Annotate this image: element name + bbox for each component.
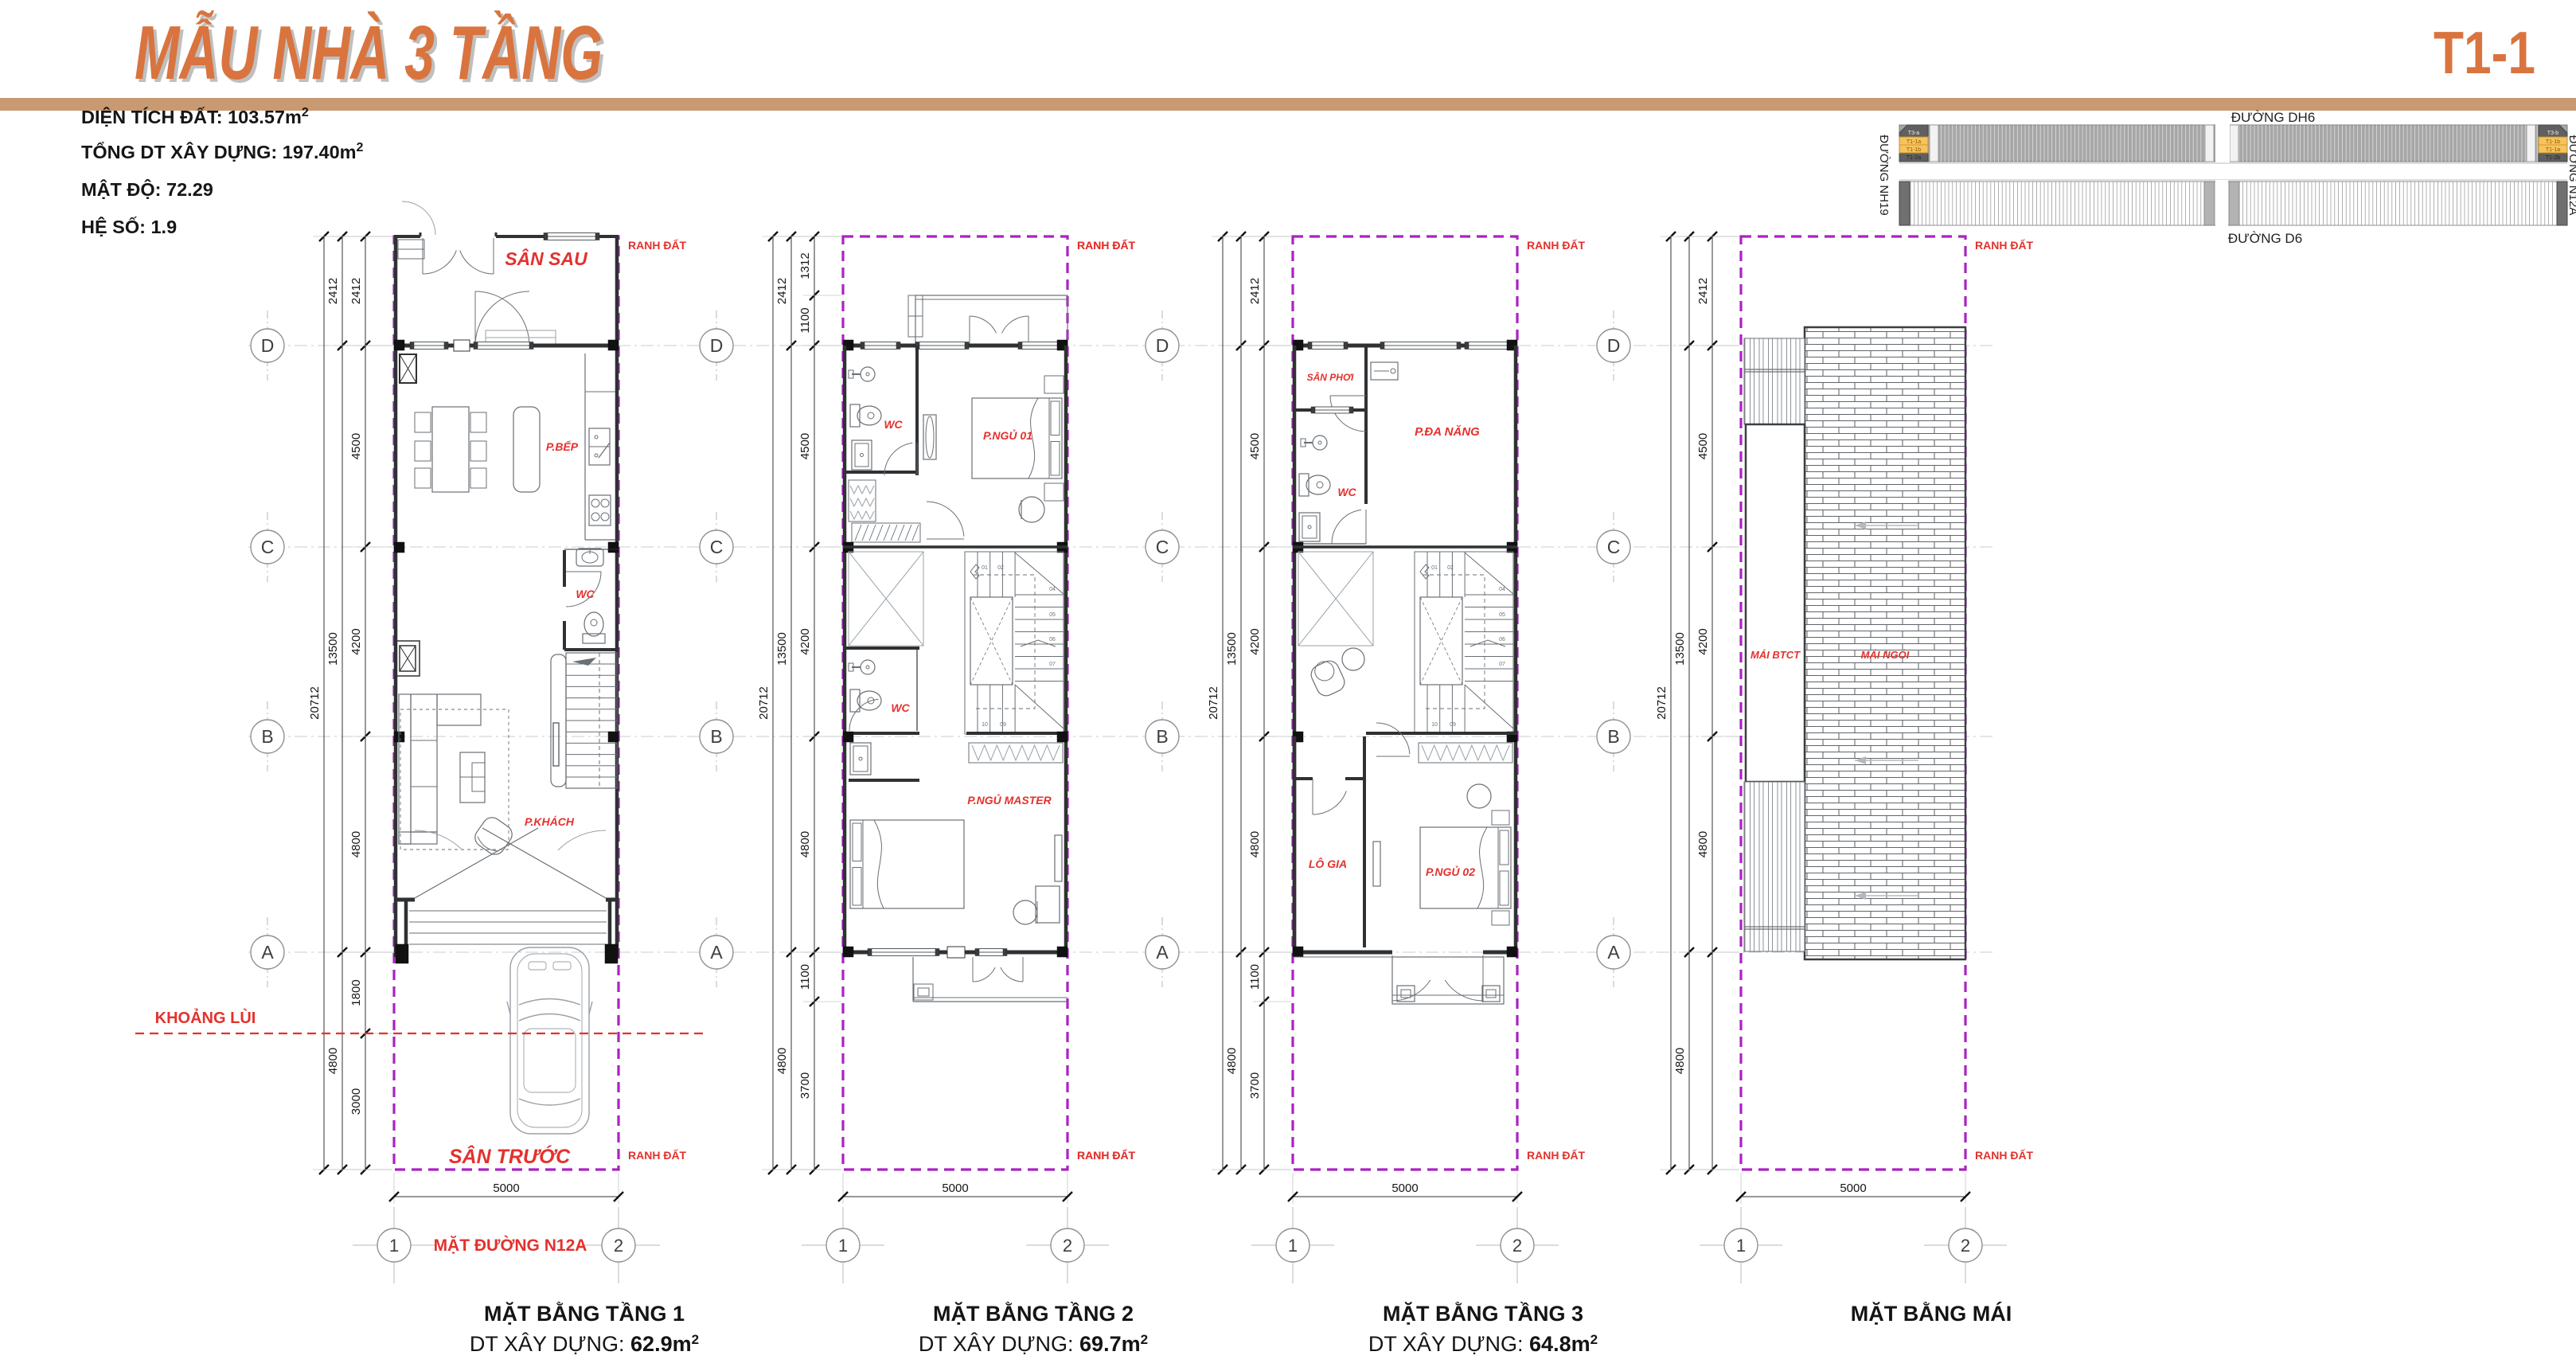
svg-text:1: 1 <box>1736 1236 1746 1256</box>
svg-text:SÂN PHƠI: SÂN PHƠI <box>1307 371 1354 383</box>
svg-text:07: 07 <box>1499 662 1505 667</box>
svg-text:RANH ĐẤT: RANH ĐẤT <box>1527 239 1586 252</box>
svg-text:T1-1a: T1-1a <box>2546 147 2560 153</box>
svg-text:5000: 5000 <box>942 1182 968 1195</box>
svg-text:04: 04 <box>1499 587 1505 592</box>
svg-text:DT XÂY DỰNG: 69.7m2: DT XÂY DỰNG: 69.7m2 <box>919 1331 1148 1356</box>
svg-text:RANH ĐẤT: RANH ĐẤT <box>628 1149 687 1162</box>
svg-text:4800: 4800 <box>1696 831 1710 857</box>
svg-text:2412: 2412 <box>1696 278 1710 304</box>
svg-text:A: A <box>1156 942 1169 963</box>
svg-text:MẪU NHÀ 3 TẦNG: MẪU NHÀ 3 TẦNG <box>135 10 603 96</box>
svg-text:B: B <box>1156 726 1168 747</box>
svg-text:20712: 20712 <box>308 686 322 720</box>
svg-text:1800: 1800 <box>349 979 363 1006</box>
svg-text:MẶT BẰNG TẦNG 1: MẶT BẰNG TẦNG 1 <box>484 1301 685 1326</box>
svg-text:WC: WC <box>1337 486 1356 498</box>
svg-text:07: 07 <box>1049 662 1056 667</box>
svg-text:D: D <box>1607 335 1621 356</box>
svg-text:13500: 13500 <box>1673 632 1687 666</box>
svg-text:TỔNG DT XÂY DỰNG: 197.40m2: TỔNG DT XÂY DỰNG: 197.40m2 <box>81 141 364 162</box>
svg-text:2: 2 <box>1961 1236 1970 1256</box>
svg-text:13500: 13500 <box>1225 632 1239 666</box>
svg-text:LÔ GIA: LÔ GIA <box>1309 857 1347 870</box>
svg-text:D: D <box>261 335 275 356</box>
svg-text:2412: 2412 <box>326 278 340 304</box>
svg-text:02: 02 <box>997 565 1004 571</box>
svg-text:5000: 5000 <box>1840 1182 1866 1195</box>
svg-text:D: D <box>1156 335 1169 356</box>
svg-text:A: A <box>1607 942 1620 963</box>
svg-text:4800: 4800 <box>1248 831 1262 857</box>
svg-text:09: 09 <box>1000 722 1006 728</box>
svg-text:4500: 4500 <box>349 433 363 459</box>
svg-text:13500: 13500 <box>326 632 340 666</box>
svg-text:3700: 3700 <box>1248 1072 1262 1099</box>
svg-text:RANH ĐẤT: RANH ĐẤT <box>1975 1149 2034 1162</box>
svg-text:3000: 3000 <box>349 1088 363 1115</box>
svg-text:SÂN SAU: SÂN SAU <box>505 248 588 269</box>
svg-text:MẶT BẰNG MÁI: MẶT BẰNG MÁI <box>1851 1301 2012 1326</box>
svg-text:4500: 4500 <box>1696 433 1710 459</box>
svg-text:DT XÂY DỰNG: 64.8m2: DT XÂY DỰNG: 64.8m2 <box>1368 1331 1598 1356</box>
svg-text:P.NGỦ MASTER: P.NGỦ MASTER <box>967 793 1052 807</box>
svg-text:C: C <box>710 537 724 557</box>
svg-text:P.ĐA NĂNG: P.ĐA NĂNG <box>1415 425 1480 439</box>
svg-text:5000: 5000 <box>493 1182 519 1195</box>
svg-text:ĐƯỜNG N12A: ĐƯỜNG N12A <box>2566 135 2576 216</box>
svg-text:DT XÂY DỰNG: 62.9m2: DT XÂY DỰNG: 62.9m2 <box>470 1331 699 1356</box>
svg-text:4800: 4800 <box>798 831 812 857</box>
svg-text:2412: 2412 <box>775 278 789 304</box>
svg-text:4800: 4800 <box>349 831 363 857</box>
svg-text:HỆ SỐ: 1.9: HỆ SỐ: 1.9 <box>81 216 177 237</box>
svg-text:5000: 5000 <box>1391 1182 1418 1195</box>
svg-text:KHOẢNG LÙI: KHOẢNG LÙI <box>155 1008 256 1027</box>
svg-text:DIỆN TÍCH ĐẤT: 103.57m2: DIỆN TÍCH ĐẤT: 103.57m2 <box>81 106 309 127</box>
svg-text:2412: 2412 <box>1248 278 1262 304</box>
svg-text:05: 05 <box>1499 612 1505 618</box>
svg-text:4800: 4800 <box>1673 1048 1687 1074</box>
svg-text:1: 1 <box>389 1236 399 1256</box>
svg-text:MÁI NGÓI: MÁI NGÓI <box>1861 649 1910 661</box>
svg-text:4800: 4800 <box>775 1048 789 1074</box>
svg-text:B: B <box>1607 726 1619 747</box>
svg-text:1100: 1100 <box>1248 964 1262 990</box>
svg-text:06: 06 <box>1499 637 1505 643</box>
svg-text:01: 01 <box>982 565 988 571</box>
svg-text:ĐƯỜNG NH19: ĐƯỜNG NH19 <box>1877 135 1891 216</box>
svg-text:20712: 20712 <box>1655 686 1669 720</box>
svg-text:1: 1 <box>838 1236 848 1256</box>
svg-text:B: B <box>710 726 722 747</box>
svg-text:P.NGỦ 02: P.NGỦ 02 <box>1426 865 1475 878</box>
svg-text:4200: 4200 <box>1696 628 1710 654</box>
svg-text:B: B <box>261 726 273 747</box>
svg-text:1312: 1312 <box>798 252 812 279</box>
svg-text:ĐƯỜNG D6: ĐƯỜNG D6 <box>2228 231 2302 246</box>
svg-text:MẶT ĐƯỜNG N12A: MẶT ĐƯỜNG N12A <box>434 1236 587 1255</box>
svg-text:T1-1: T1-1 <box>2434 19 2535 86</box>
svg-text:4200: 4200 <box>1248 628 1262 654</box>
svg-text:T1-2b: T1-2b <box>2546 155 2560 161</box>
svg-text:2: 2 <box>614 1236 623 1256</box>
svg-text:01: 01 <box>1431 565 1438 571</box>
svg-text:D: D <box>710 335 724 356</box>
svg-text:MÁI BTCT: MÁI BTCT <box>1751 649 1801 661</box>
svg-text:04: 04 <box>1049 587 1056 592</box>
svg-text:4800: 4800 <box>326 1048 340 1074</box>
svg-text:C: C <box>1607 537 1621 557</box>
svg-text:05: 05 <box>1049 612 1056 618</box>
svg-text:T1-2a: T1-2a <box>1907 155 1921 161</box>
svg-text:1: 1 <box>1288 1236 1298 1256</box>
svg-text:4500: 4500 <box>798 433 812 459</box>
svg-text:RANH ĐẤT: RANH ĐẤT <box>628 239 687 252</box>
svg-text:4200: 4200 <box>349 628 363 654</box>
svg-text:T1-1b: T1-1b <box>2546 139 2560 145</box>
svg-text:T1-1a: T1-1a <box>1907 139 1921 145</box>
svg-text:09: 09 <box>1450 722 1456 728</box>
svg-text:20712: 20712 <box>1207 686 1220 720</box>
svg-text:RANH ĐẤT: RANH ĐẤT <box>1975 239 2034 252</box>
svg-text:4800: 4800 <box>1225 1048 1239 1074</box>
svg-text:2: 2 <box>1512 1236 1522 1256</box>
svg-text:20712: 20712 <box>757 686 771 720</box>
svg-text:2412: 2412 <box>349 278 363 304</box>
svg-text:WC: WC <box>891 701 910 714</box>
svg-text:WC: WC <box>576 588 595 600</box>
svg-text:1100: 1100 <box>798 964 812 990</box>
svg-text:P.BẾP: P.BẾP <box>546 439 579 453</box>
svg-text:WC: WC <box>884 418 903 431</box>
svg-text:T3-b: T3-b <box>2547 131 2559 136</box>
svg-text:RANH ĐẤT: RANH ĐẤT <box>1077 239 1136 252</box>
svg-text:ĐƯỜNG DH6: ĐƯỜNG DH6 <box>2231 110 2316 125</box>
svg-text:10: 10 <box>982 722 988 728</box>
svg-text:RANH ĐẤT: RANH ĐẤT <box>1527 1149 1586 1162</box>
svg-text:P.NGỦ 01: P.NGỦ 01 <box>983 428 1032 442</box>
svg-text:T3-a: T3-a <box>1908 131 1920 136</box>
svg-text:C: C <box>1156 537 1169 557</box>
svg-text:RANH ĐẤT: RANH ĐẤT <box>1077 1149 1136 1162</box>
svg-text:4200: 4200 <box>798 628 812 654</box>
svg-text:MẶT BẰNG TẦNG 2: MẶT BẰNG TẦNG 2 <box>933 1301 1134 1326</box>
svg-text:3700: 3700 <box>798 1072 812 1099</box>
svg-text:SÂN TRƯỚC: SÂN TRƯỚC <box>449 1144 571 1168</box>
svg-text:4500: 4500 <box>1248 433 1262 459</box>
svg-text:P.KHÁCH: P.KHÁCH <box>525 815 575 828</box>
svg-text:1100: 1100 <box>798 307 812 333</box>
svg-text:C: C <box>261 537 275 557</box>
svg-text:MẶT BẰNG TẦNG 3: MẶT BẰNG TẦNG 3 <box>1383 1301 1583 1326</box>
svg-text:A: A <box>710 942 723 963</box>
svg-text:13500: 13500 <box>775 632 789 666</box>
svg-text:MẬT ĐỘ: 72.29: MẬT ĐỘ: 72.29 <box>81 178 213 200</box>
svg-text:10: 10 <box>1431 722 1438 728</box>
svg-text:A: A <box>261 942 274 963</box>
svg-text:T1-1b: T1-1b <box>1907 147 1921 153</box>
svg-text:02: 02 <box>1447 565 1454 571</box>
svg-text:2: 2 <box>1063 1236 1072 1256</box>
svg-text:06: 06 <box>1049 637 1056 643</box>
